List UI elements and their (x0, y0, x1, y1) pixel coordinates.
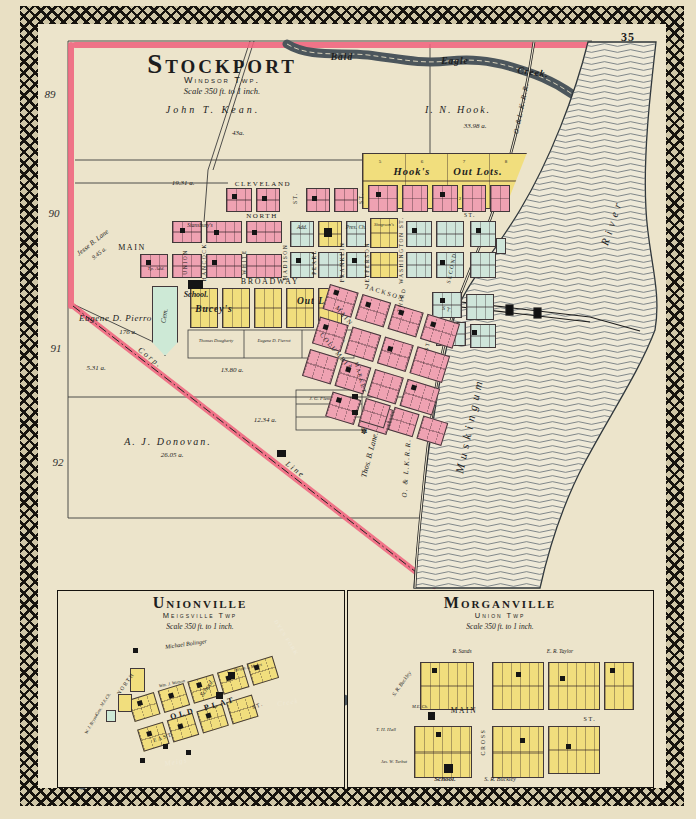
lot-number: 2 (459, 196, 462, 201)
mv-hall: T. H. Hall (376, 727, 396, 732)
buceys-lot (254, 288, 282, 328)
stockport-twp: Windsor Twp. (184, 76, 260, 85)
unionville-title: Unionville (153, 595, 248, 611)
lot-number: 6 (421, 159, 424, 164)
building-mark (146, 260, 151, 265)
town-block (470, 324, 496, 348)
town-block (470, 252, 496, 278)
street-main: MAIN (118, 244, 146, 252)
town-block (432, 185, 458, 212)
mv-block (548, 726, 600, 774)
parcel-1234: 12.34 a. (254, 417, 277, 424)
stansburys-label: Stansbury's (187, 223, 212, 229)
mv-block (604, 662, 634, 710)
margin-number-91: 91 (51, 343, 62, 354)
town-block (436, 221, 464, 247)
building-mark (440, 260, 445, 265)
parcel-hook: I. N. Hook. (425, 105, 491, 115)
simpsons-label: Simpson's (374, 222, 394, 227)
building-mark (476, 228, 481, 233)
building-mark (432, 668, 437, 673)
town-block (406, 252, 432, 278)
building-mark (133, 648, 138, 653)
building-mark (296, 258, 301, 263)
street-pearl: PEARL (312, 249, 318, 274)
town-block (368, 185, 398, 212)
building-mark (212, 260, 217, 265)
school-building (188, 280, 203, 289)
building-mark (252, 230, 257, 235)
parcel-dougherty: Thomas Dougherty (199, 339, 234, 344)
parcel-1380: 13.80 a. (221, 367, 244, 374)
morganville-title: Morganville (444, 595, 556, 611)
add-label: Add. (297, 225, 307, 231)
parcel-pierrot: Eugene D. Pierrot (79, 314, 155, 323)
morganville-scale: Scale 350 ft. to 1 inch. (466, 623, 533, 631)
parcel-donovan: A. J. Donovan. (124, 437, 212, 447)
street-st-2: ST. (359, 192, 365, 204)
building-mark (262, 196, 267, 201)
mv-street-main-st: ST. (584, 716, 597, 722)
building-mark (180, 228, 185, 233)
street-jefferson: JEFFERSON (365, 242, 371, 286)
street-cleveland: CLEVELAND (235, 181, 291, 188)
building-mark (440, 192, 445, 197)
town-block (462, 185, 486, 212)
parcel-hook-acres: 33.98 a. (464, 123, 487, 130)
town-block (206, 254, 242, 278)
mv-sands: R. Sands (452, 649, 471, 655)
school-label: School. (184, 291, 209, 299)
simpsons-block (370, 252, 398, 278)
building-mark (232, 194, 237, 199)
street-st-3: ST. (464, 213, 476, 219)
building-mark (610, 668, 615, 673)
street-white: WHITE (242, 249, 248, 275)
mv-buckley-south: S. R. Buckley (484, 776, 516, 782)
street-north: NORTH (246, 213, 278, 220)
building-mark (516, 672, 521, 677)
building-mark (312, 196, 317, 201)
hooks-outlots-label: Out Lots. (453, 167, 502, 178)
stockport-title: Stockport (147, 51, 297, 78)
lot-number: 7 (463, 159, 466, 164)
mv-block (420, 662, 474, 710)
building-mark (352, 394, 358, 399)
building-mark (560, 676, 565, 681)
mv-turbut: Jas. W. Turbut (381, 760, 407, 765)
town-block (334, 188, 358, 212)
mv-mech: M.E. Ch. (412, 705, 428, 710)
uv-church-block (106, 710, 116, 722)
building-mark (472, 330, 477, 335)
building-mark (140, 758, 145, 763)
mv-block (492, 662, 544, 710)
building-mark (352, 410, 358, 415)
town-block (466, 294, 494, 320)
creek-label-bald: Bald (331, 53, 353, 63)
building-mark (440, 298, 445, 303)
town-block (256, 188, 280, 212)
church-building (324, 228, 332, 237)
mv-block (414, 726, 472, 778)
margin-number-92: 92 (53, 457, 64, 468)
town-block (306, 188, 330, 212)
parcel-donovan-acres: 26.05 a. (161, 452, 184, 459)
town-block (346, 252, 366, 278)
pres-church-label: Pres. Ch. (346, 225, 366, 231)
parcel-1931: 19.31 a. (172, 180, 195, 187)
building-mark (277, 450, 286, 457)
parcel-kean: John T. Kean. (166, 105, 260, 115)
mv-block (492, 726, 544, 778)
tp-add-label: Tp. Add. (148, 266, 165, 271)
street-hancock: HANCOCK (202, 243, 208, 281)
street-franklin: FRANKLIN (340, 242, 346, 283)
street-washington: WASHINGTON ST. (399, 216, 405, 284)
mv-block (548, 662, 600, 710)
town-block (402, 185, 428, 212)
building-mark (566, 744, 571, 749)
creek-label-eagle: Eagle (441, 57, 469, 67)
building-mark (520, 738, 525, 743)
street-st-1: ST. (293, 192, 299, 204)
mv-school-building (444, 764, 453, 773)
mv-school-label: School. (434, 776, 456, 783)
lot-number: 8 (505, 159, 508, 164)
building-mark (376, 192, 381, 197)
parcel-pierrot-acres: 176 a. (119, 329, 137, 336)
unionville-scale: Scale 350 ft. to 1 inch. (166, 623, 233, 631)
margin-number-89: 89 (45, 89, 56, 100)
town-block (406, 221, 432, 247)
stockport-scale: Scale 350 ft. to 1 inch. (184, 87, 260, 96)
parcel-kean-acres: 43a. (232, 130, 244, 137)
mv-street-cross: CROSS (480, 728, 486, 755)
margin-number-90: 90 (49, 208, 60, 219)
unionville-twp: Meigsville Twp (163, 612, 237, 620)
building-mark (186, 750, 191, 755)
mv-church-building (428, 712, 435, 720)
street-union: UNION (183, 249, 189, 275)
mv-taylor: E. R. Taylor (547, 649, 573, 655)
town-block (490, 185, 510, 212)
hooks-label: Hook's (394, 167, 431, 178)
town-block (246, 254, 282, 278)
building-mark (214, 230, 219, 235)
town-block (470, 221, 496, 247)
buceys-label: Bucey's (195, 305, 233, 315)
mv-street-main: MAIN (451, 707, 477, 715)
lot-number: 5 (379, 159, 382, 164)
parcel-pierrot2: Eugene D. Pierrot (258, 339, 291, 344)
building-mark (352, 258, 357, 263)
town-block (226, 188, 252, 212)
page-number: 35 (621, 31, 635, 43)
buceys-lot (286, 288, 314, 328)
morganville-twp: Union Twp (475, 612, 526, 620)
building-mark (412, 228, 417, 233)
street-madison: MADISON (283, 244, 289, 281)
atlas-page: 35 89 90 91 92 Stockport Windsor Twp. Sc… (0, 0, 696, 819)
street-broadway: BROADWAY (241, 278, 299, 286)
parcel-531: 5.31 a. (86, 365, 105, 372)
building-mark (436, 732, 441, 737)
building-mark (163, 744, 168, 749)
riverfront-block (496, 238, 506, 254)
